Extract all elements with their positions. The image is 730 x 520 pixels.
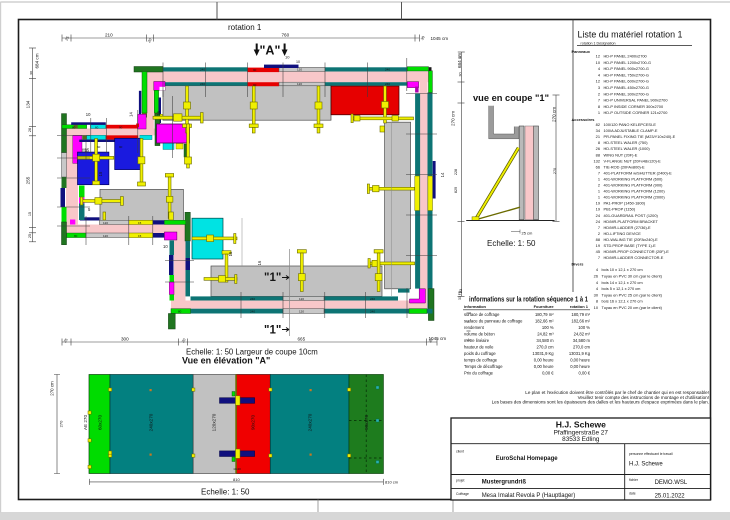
- svg-text:10: 10: [285, 55, 290, 60]
- svg-text:240: 240: [385, 82, 390, 86]
- svg-text:270 cm: 270 cm: [451, 111, 456, 126]
- svg-text:270,0 cm: 270,0 cm: [537, 344, 555, 349]
- svg-text:Liste du matériel rotation 1: Liste du matériel rotation 1: [578, 30, 683, 40]
- svg-text:HD-P PANEL 600x2700-G: HD-P PANEL 600x2700-G: [604, 79, 649, 84]
- svg-text:HD-P PANEL 750x2700-G: HD-P PANEL 750x2700-G: [604, 72, 649, 77]
- svg-text:1: 1: [598, 110, 600, 115]
- svg-text:15: 15: [228, 251, 233, 256]
- svg-text:120: 120: [103, 234, 108, 238]
- svg-text:Panneaux: Panneaux: [572, 49, 591, 54]
- svg-text:HD-P PANEL 1200x2700-G: HD-P PANEL 1200x2700-G: [604, 60, 652, 65]
- svg-text:24,82 m³: 24,82 m³: [537, 331, 554, 336]
- svg-text:Prix du coffrage: Prix du coffrage: [464, 370, 494, 375]
- svg-text:HD-P PANEL 450x2700-G: HD-P PANEL 450x2700-G: [604, 85, 649, 90]
- svg-text:10: 10: [86, 112, 91, 117]
- svg-text:401-WORKING PLATFORM (600): 401-WORKING PLATFORM (600): [604, 176, 664, 181]
- svg-text:82: 82: [596, 122, 600, 127]
- svg-text:26: 26: [28, 128, 32, 132]
- svg-text:Mustergrundriß: Mustergrundriß: [482, 480, 527, 486]
- svg-text:21: 21: [596, 134, 600, 139]
- svg-text:surface du panneau de coffrage: surface du panneau de coffrage: [464, 318, 523, 323]
- svg-text:1: 1: [598, 176, 600, 181]
- svg-text:HD-STEEL WALER (750): HD-STEEL WALER (750): [604, 140, 649, 145]
- svg-text:hauteur de voile: hauteur de voile: [464, 344, 494, 349]
- svg-text:Mesa Imalat Revola P (Hauptlag: Mesa Imalat Revola P (Hauptlager): [482, 493, 576, 499]
- svg-text:88: 88: [596, 152, 600, 157]
- svg-text:34,580 m: 34,580 m: [573, 338, 591, 343]
- svg-text:PB1-PROP (1150): PB1-PROP (1150): [604, 207, 636, 212]
- svg-text:270,0 cm: 270,0 cm: [573, 344, 591, 349]
- svg-text:100/A ADJUSTABLE CLAMP-E: 100/A ADJUSTABLE CLAMP-E: [604, 128, 658, 133]
- svg-text:7: 7: [598, 170, 600, 175]
- svg-text:10: 10: [163, 244, 168, 249]
- svg-text:temps de coffrage: temps de coffrage: [464, 357, 498, 362]
- svg-text:15: 15: [98, 171, 103, 176]
- svg-text:rotation 1: rotation 1: [570, 304, 589, 309]
- svg-text:829: 829: [454, 187, 458, 193]
- svg-text:401-PLATFORM w/SHUTTER (2400)-: 401-PLATFORM w/SHUTTER (2400)-E: [604, 170, 673, 175]
- svg-text:684 cm: 684 cm: [35, 53, 40, 68]
- svg-text:13031,9 Kg: 13031,9 Kg: [569, 351, 591, 356]
- svg-text:HD-P OUTSIDE CORNER 121x2700: HD-P OUTSIDE CORNER 121x2700: [604, 110, 669, 115]
- svg-text:401-WORKING PLATFORM (1200): 401-WORKING PLATFORM (1200): [604, 189, 666, 194]
- svg-text:25: 25: [28, 234, 32, 238]
- svg-text:HD-P UNIVERSAL PANEL 900x2700: HD-P UNIVERSAL PANEL 900x2700: [604, 98, 669, 103]
- svg-text:bois 14 x 12,1 x 270 cm: bois 14 x 12,1 x 270 cm: [602, 280, 643, 285]
- svg-text:83533 Edling: 83533 Edling: [562, 436, 600, 443]
- svg-text:14: 14: [129, 112, 134, 117]
- svg-text:60: 60: [95, 126, 99, 130]
- svg-text:15: 15: [85, 148, 90, 153]
- svg-text:240: 240: [385, 68, 390, 72]
- svg-text:90x270: 90x270: [251, 415, 256, 431]
- svg-text:HD/MR-LADDER (27/36)-E: HD/MR-LADDER (27/36)-E: [604, 225, 652, 230]
- svg-text:mètre linéaire: mètre linéaire: [464, 338, 490, 343]
- svg-text:Vue en élévation "A": Vue en élévation "A": [182, 356, 270, 366]
- svg-text:80: 80: [74, 234, 78, 238]
- svg-text:projet: projet: [456, 479, 465, 483]
- svg-text:120: 120: [297, 68, 302, 72]
- svg-text:personne effectuant le travail: personne effectuant le travail: [629, 452, 673, 456]
- svg-text:PA1-PROP (1450-1800): PA1-PROP (1450-1800): [604, 201, 646, 206]
- svg-text:34,580 m: 34,580 m: [536, 338, 554, 343]
- svg-text:HD-STEEL WALER (1000): HD-STEEL WALER (1000): [604, 146, 651, 151]
- svg-text:180,79 m²: 180,79 m²: [571, 312, 590, 317]
- svg-text:fichier: fichier: [629, 478, 639, 482]
- svg-text:25 cm: 25 cm: [522, 231, 534, 236]
- svg-text:401-GUARDRAIL POST (1200): 401-GUARDRAIL POST (1200): [604, 213, 659, 218]
- svg-text:information: information: [464, 304, 487, 309]
- svg-text:bois 5 x 12,1 x 270 cm: bois 5 x 12,1 x 270 cm: [602, 286, 641, 291]
- svg-text:"A": "A": [260, 44, 281, 58]
- svg-text:240: 240: [370, 310, 375, 314]
- svg-text:Accessoires: Accessoires: [572, 117, 595, 122]
- svg-text:2: 2: [598, 183, 600, 188]
- svg-text:16: 16: [257, 260, 262, 265]
- svg-text:255: 255: [26, 176, 31, 184]
- svg-text:90: 90: [119, 145, 123, 149]
- svg-text:401-WORKING PLATFORM (900): 401-WORKING PLATFORM (900): [604, 183, 664, 188]
- svg-text:HD/MR-PROP CONNECTOR (20F)-E: HD/MR-PROP CONNECTOR (20F)-E: [604, 249, 670, 254]
- svg-text:0,00 heure: 0,00 heure: [534, 357, 554, 362]
- svg-text:100/120 PANO KELEPCESI-E: 100/120 PANO KELEPCESI-E: [604, 122, 657, 127]
- svg-text:270 cm: 270 cm: [50, 381, 55, 396]
- svg-text:Coffrage: Coffrage: [456, 492, 469, 496]
- svg-text:Divers: Divers: [572, 262, 584, 267]
- svg-text:DEMO.WSL: DEMO.WSL: [655, 480, 688, 486]
- svg-text:2: 2: [598, 231, 600, 236]
- svg-text:Tuyau en PVC 30 cm (par le cli: Tuyau en PVC 30 cm (par le client): [602, 274, 663, 279]
- svg-text:TIE-ROD (20FAx800)-E: TIE-ROD (20FAx800)-E: [604, 164, 645, 169]
- svg-text:H.J. Schewe: H.J. Schewe: [556, 420, 606, 430]
- svg-text:19: 19: [596, 201, 600, 206]
- svg-text:informations sur la rotation: informations sur la rotation séquence 1 …: [469, 297, 588, 304]
- svg-text:240: 240: [250, 297, 255, 301]
- svg-text:WING NUT (20F)-E: WING NUT (20F)-E: [604, 152, 638, 157]
- svg-text:240: 240: [250, 310, 255, 314]
- svg-text:270 cm: 270 cm: [552, 107, 557, 122]
- svg-text:240x270: 240x270: [308, 413, 313, 431]
- svg-text:134: 134: [26, 100, 31, 108]
- svg-text:0,00 €: 0,00 €: [542, 370, 554, 375]
- svg-text:Les bases des dimensions sont: Les bases des dimensions sont les épaiss…: [492, 400, 709, 405]
- svg-text:10: 10: [296, 60, 300, 64]
- svg-text:volume de béton: volume de béton: [464, 331, 495, 336]
- svg-text:V-FLANGE NUT (20Fx48x120)-E: V-FLANGE NUT (20Fx48x120)-E: [604, 158, 662, 163]
- svg-text:0,00 heure: 0,00 heure: [570, 357, 590, 362]
- svg-text:bois 10 x 12,1 x 270 cm: bois 10 x 12,1 x 270 cm: [602, 267, 643, 272]
- svg-text:Echelle: 1: 50: Echelle: 1: 50: [201, 488, 250, 497]
- svg-text:15: 15: [28, 212, 32, 216]
- svg-text:19: 19: [596, 207, 600, 212]
- svg-text:26: 26: [594, 274, 598, 279]
- svg-text:80: 80: [178, 310, 182, 314]
- svg-text:HD/MR-LADDER CONNECTOR-E: HD/MR-LADDER CONNECTOR-E: [604, 255, 664, 260]
- svg-text:rotation 1 Désignation: rotation 1 Désignation: [581, 41, 616, 45]
- svg-text:270: 270: [553, 168, 557, 174]
- svg-text:30 FB: 30 FB: [458, 290, 462, 300]
- svg-text:Tuyau en PVC 20 cm (par le cli: Tuyau en PVC 20 cm (par le client): [602, 305, 663, 310]
- svg-text:240x270: 240x270: [149, 413, 154, 431]
- svg-text:15: 15: [138, 234, 142, 238]
- svg-text:90: 90: [119, 126, 123, 130]
- svg-text:H.J. Schewe: H.J. Schewe: [629, 462, 663, 468]
- svg-text:Temps de décoffrage: Temps de décoffrage: [464, 364, 503, 369]
- svg-text:1045 cm: 1045 cm: [429, 336, 447, 341]
- svg-text:1: 1: [598, 189, 600, 194]
- svg-text:120: 120: [299, 310, 304, 314]
- svg-text:EuroSchal Homepage: EuroSchal Homepage: [496, 456, 559, 462]
- svg-text:25.01.2022: 25.01.2022: [655, 494, 686, 500]
- svg-text:HD-P INSIDE CORNER 300x2700: HD-P INSIDE CORNER 300x2700: [604, 104, 664, 109]
- svg-text:60x270: 60x270: [98, 415, 103, 431]
- svg-text:10x30: 10x30: [233, 467, 241, 471]
- svg-text:100 %: 100 %: [542, 325, 554, 330]
- svg-text:HD-WALING TIE (20FAx240)-E: HD-WALING TIE (20FAx240)-E: [604, 237, 659, 242]
- svg-text:HD-P PANEL 900x2700-G: HD-P PANEL 900x2700-G: [604, 66, 649, 71]
- svg-text:8: 8: [596, 299, 598, 304]
- svg-text:120: 120: [297, 82, 302, 86]
- svg-text:210: 210: [105, 33, 113, 38]
- svg-text:Fourniture: Fourniture: [534, 304, 555, 309]
- svg-text:88: 88: [596, 237, 600, 242]
- svg-text:66: 66: [596, 164, 600, 169]
- svg-text:30: 30: [30, 71, 34, 75]
- svg-text:810 cm: 810 cm: [385, 480, 399, 485]
- svg-text:"1": "1": [264, 325, 281, 337]
- svg-text:90: 90: [253, 83, 257, 87]
- svg-text:STD.PROP BASE (TYPE 1)-E: STD.PROP BASE (TYPE 1)-E: [604, 243, 657, 248]
- svg-text:Tuyau en PVC 25 cm (par le cli: Tuyau en PVC 25 cm (par le client): [602, 292, 663, 297]
- svg-text:1: 1: [598, 195, 600, 200]
- svg-text:760: 760: [282, 33, 290, 38]
- svg-text:401-WORKING PLATFORM (2000): 401-WORKING PLATFORM (2000): [604, 195, 666, 200]
- svg-text:13031,9 Kg: 13031,9 Kg: [532, 351, 554, 356]
- svg-text:date: date: [629, 492, 636, 496]
- svg-text:2: 2: [598, 91, 600, 96]
- svg-text:24,82 m³: 24,82 m³: [574, 331, 591, 336]
- svg-text:300: 300: [121, 337, 129, 342]
- svg-text:15: 15: [138, 221, 142, 225]
- svg-text:810: 810: [233, 477, 240, 482]
- svg-text:120x270: 120x270: [212, 413, 217, 431]
- svg-text:1045 cm: 1045 cm: [431, 36, 449, 41]
- svg-text:8: 8: [598, 104, 600, 109]
- svg-text:AE 270: AE 270: [83, 415, 88, 431]
- svg-text:60: 60: [97, 145, 101, 149]
- svg-text:182,66 m²: 182,66 m²: [535, 318, 554, 323]
- svg-text:poids du coffrage: poids du coffrage: [464, 351, 496, 356]
- svg-text:90: 90: [253, 68, 257, 72]
- svg-text:228: 228: [454, 169, 458, 175]
- svg-text:240: 240: [200, 82, 205, 86]
- svg-text:8: 8: [598, 140, 600, 145]
- svg-text:Echelle: 1: 50: Echelle: 1: 50: [487, 239, 536, 248]
- svg-text:vue en coupe "1": vue en coupe "1": [473, 93, 549, 103]
- svg-text:26: 26: [596, 146, 600, 151]
- svg-text:7: 7: [598, 225, 600, 230]
- svg-text:"1": "1": [264, 272, 281, 284]
- svg-text:19: 19: [596, 243, 600, 248]
- svg-text:45: 45: [596, 249, 600, 254]
- svg-text:100 %: 100 %: [578, 325, 590, 330]
- svg-text:132: 132: [594, 158, 601, 163]
- svg-text:14: 14: [156, 111, 161, 116]
- svg-text:90x270: 90x270: [364, 415, 369, 431]
- svg-text:HD-LIFTING DEVICE: HD-LIFTING DEVICE: [604, 231, 642, 236]
- svg-text:270: 270: [59, 420, 64, 427]
- svg-text:0,00 heure: 0,00 heure: [570, 364, 590, 369]
- svg-text:rotation 1: rotation 1: [228, 23, 262, 32]
- svg-text:30: 30: [459, 72, 463, 76]
- svg-text:12: 12: [596, 79, 600, 84]
- svg-text:7: 7: [598, 255, 600, 260]
- svg-text:12: 12: [596, 54, 600, 59]
- svg-text:182,66 m²: 182,66 m²: [571, 318, 590, 323]
- svg-text:665: 665: [298, 337, 306, 342]
- svg-text:3: 3: [598, 85, 600, 90]
- svg-text:0,00 €: 0,00 €: [578, 370, 590, 375]
- svg-text:bois 16 x 12,1 x 270 cm: bois 16 x 12,1 x 270 cm: [602, 299, 643, 304]
- svg-text:surface de coffrage: surface de coffrage: [464, 312, 500, 317]
- svg-text:684 cm: 684 cm: [457, 53, 462, 68]
- svg-text:rendement: rendement: [464, 325, 485, 330]
- svg-text:240: 240: [200, 68, 205, 72]
- svg-text:80: 80: [72, 126, 76, 130]
- svg-text:HD-P PANEL 300x2700-G: HD-P PANEL 300x2700-G: [604, 91, 649, 96]
- svg-text:7: 7: [598, 98, 600, 103]
- svg-text:14: 14: [440, 172, 445, 177]
- svg-text:client: client: [456, 450, 464, 454]
- svg-text:180,79 m²: 180,79 m²: [535, 312, 554, 317]
- svg-text:0,00 heure: 0,00 heure: [534, 364, 554, 369]
- svg-text:240: 240: [370, 297, 375, 301]
- svg-text:120: 120: [299, 297, 304, 301]
- svg-text:120: 120: [103, 221, 108, 225]
- svg-text:HD-P PANEL 2400x2700: HD-P PANEL 2400x2700: [604, 54, 648, 59]
- svg-text:PR-PANEL FIXING TIE (M23/Y10x2: PR-PANEL FIXING TIE (M23/Y10x240)-E: [604, 134, 676, 139]
- svg-text:HD/MR-PLATFORM BRACKET: HD/MR-PLATFORM BRACKET: [604, 219, 659, 224]
